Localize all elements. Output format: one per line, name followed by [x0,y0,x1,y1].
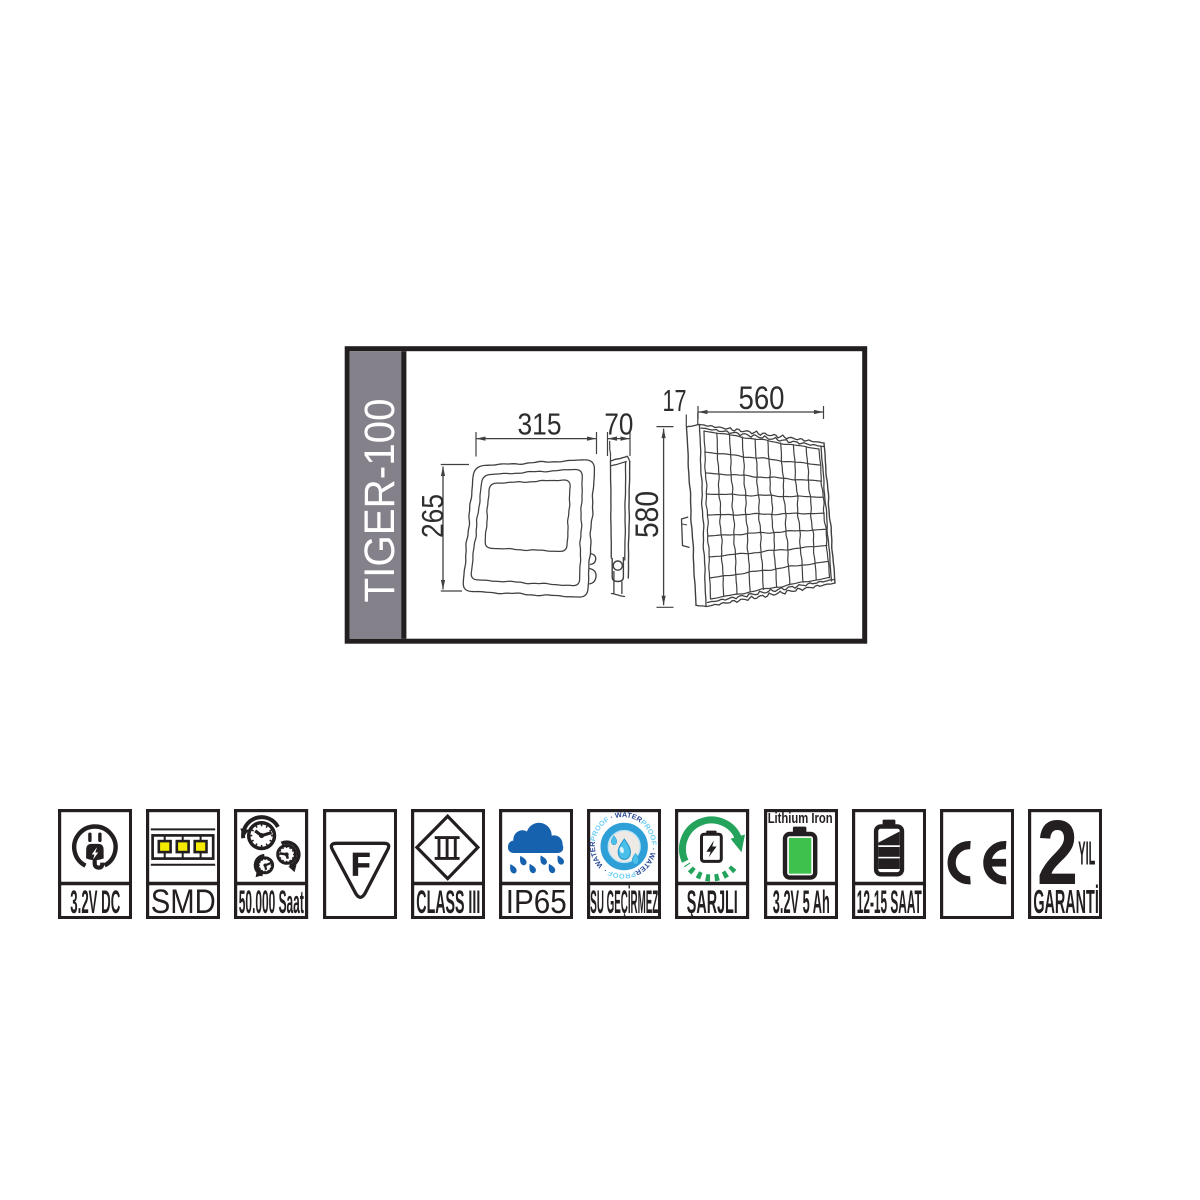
svg-text:560: 560 [739,380,785,416]
svg-text:580: 580 [629,491,665,538]
svg-text:Lithium Iron: Lithium Iron [767,811,832,827]
svg-text:GARANTİ: GARANTİ [1034,883,1099,919]
svg-text:3.2V DC: 3.2V DC [70,884,120,919]
svg-text:SU GEÇİRMEZ: SU GEÇİRMEZ [590,884,658,919]
svg-text:315: 315 [518,406,562,441]
svg-text:YIL: YIL [1078,835,1095,872]
svg-text:SMD: SMD [151,883,216,919]
svg-text:265: 265 [415,494,450,538]
svg-text:12-15 SAAT: 12-15 SAAT [857,884,922,919]
svg-text:F: F [351,847,371,883]
svg-text:3.2V 5 Ah: 3.2V 5 Ah [772,884,829,919]
svg-text:TIGER-100: TIGER-100 [357,399,404,603]
svg-text:IP65: IP65 [506,883,567,919]
svg-text:50.000 Saat: 50.000 Saat [239,884,304,919]
svg-text:ŞARJLI: ŞARJLI [687,884,738,919]
svg-text:17: 17 [663,383,687,418]
svg-text:CLASS III: CLASS III [416,884,480,919]
svg-text:70: 70 [604,406,633,441]
